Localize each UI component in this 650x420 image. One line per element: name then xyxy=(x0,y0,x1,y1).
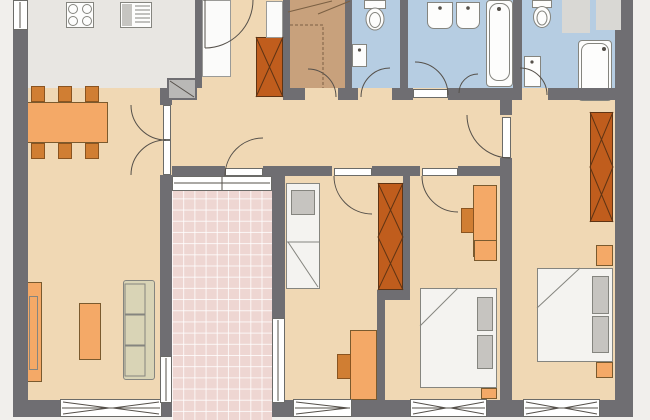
door-leaf xyxy=(413,89,448,98)
window xyxy=(272,318,285,403)
page-margin-right xyxy=(633,0,650,420)
door-leaf xyxy=(225,168,263,176)
wall xyxy=(400,0,408,100)
wall xyxy=(548,88,615,100)
storage-room-floor xyxy=(290,0,345,88)
page-margin-left xyxy=(0,0,13,420)
dining-chair xyxy=(58,86,72,102)
wall xyxy=(195,0,202,88)
hand-basin xyxy=(352,44,367,67)
wall xyxy=(392,88,413,100)
pillow xyxy=(291,190,315,215)
pillow xyxy=(592,276,609,314)
wall xyxy=(448,88,520,100)
nightstand xyxy=(481,388,497,399)
kitchen-floor xyxy=(28,0,195,88)
wall xyxy=(345,0,352,100)
desk xyxy=(350,330,377,400)
wardrobe xyxy=(590,112,613,222)
wall xyxy=(338,88,358,100)
toilet-tank xyxy=(364,0,386,9)
terrace-glazing xyxy=(172,176,272,191)
dining-chair xyxy=(58,143,72,159)
wall xyxy=(263,166,332,176)
desk-chair xyxy=(337,354,351,379)
window xyxy=(60,399,162,417)
dining-chair xyxy=(31,86,45,102)
nightstand xyxy=(474,240,497,261)
terrace-floor xyxy=(172,176,272,420)
wall xyxy=(615,0,633,417)
entry-wardrobe xyxy=(256,37,283,97)
window xyxy=(523,399,600,417)
door-leaf xyxy=(163,140,171,175)
desk-chair xyxy=(461,208,474,233)
wall xyxy=(500,158,512,400)
washbasin xyxy=(456,2,480,29)
pillow xyxy=(477,297,493,331)
washbasin xyxy=(427,2,453,29)
floor-plan xyxy=(0,0,650,420)
wall xyxy=(377,300,385,400)
wall xyxy=(500,100,512,115)
wall xyxy=(283,0,290,100)
door-leaf xyxy=(502,117,511,158)
door-leaf xyxy=(422,168,458,176)
dining-chair xyxy=(85,86,99,102)
window xyxy=(293,399,352,417)
coffee-table xyxy=(79,303,101,360)
wall xyxy=(377,290,410,300)
wall xyxy=(403,176,410,290)
wall xyxy=(372,166,420,176)
nightstand xyxy=(596,362,613,378)
wall xyxy=(283,88,305,100)
toilet-tank xyxy=(532,0,552,8)
nightstand xyxy=(596,245,613,266)
pillow xyxy=(477,335,493,369)
window xyxy=(160,356,172,403)
tall-cabinet xyxy=(202,0,231,77)
window xyxy=(13,0,28,30)
sofa xyxy=(123,280,155,380)
wall xyxy=(172,166,225,176)
dining-table xyxy=(25,102,108,143)
dining-chair xyxy=(31,143,45,159)
duct-shaft xyxy=(167,78,197,100)
stove xyxy=(66,2,94,28)
appliance-panel xyxy=(122,4,132,26)
wall xyxy=(13,0,28,417)
door-leaf xyxy=(334,168,372,176)
window xyxy=(410,399,487,417)
wall xyxy=(513,0,522,100)
wall-niche xyxy=(596,0,621,30)
pillow xyxy=(592,316,609,353)
dining-chair xyxy=(85,143,99,159)
hand-basin xyxy=(524,56,541,87)
mirror-cabinet xyxy=(266,1,283,38)
bathtub-inner xyxy=(489,3,510,81)
wall-niche xyxy=(562,0,590,33)
wardrobe xyxy=(378,183,403,290)
door-leaf xyxy=(163,105,171,140)
